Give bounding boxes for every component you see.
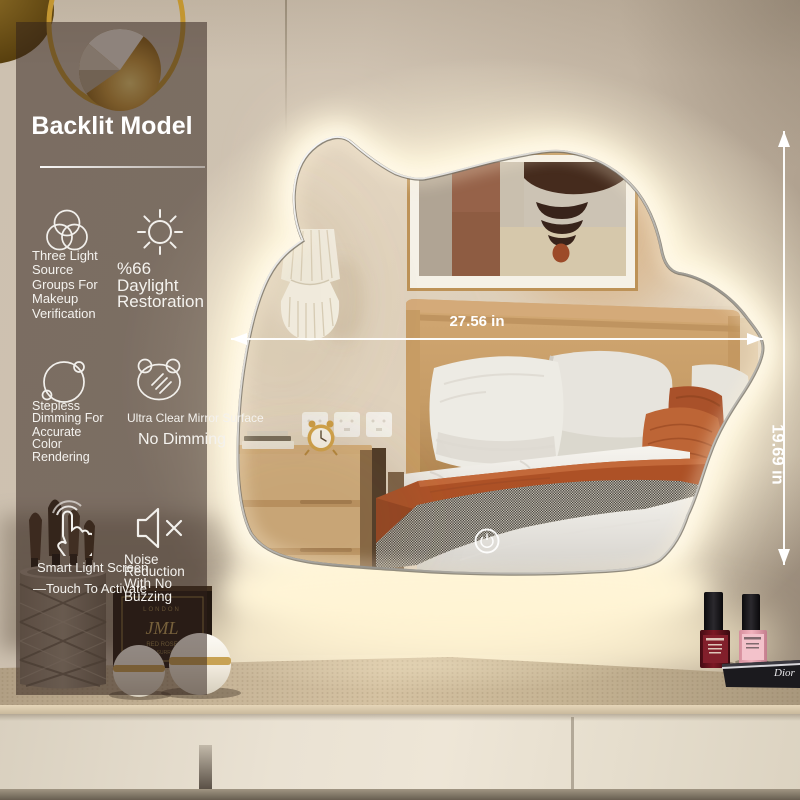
svg-text:Dior: Dior: [773, 667, 796, 679]
